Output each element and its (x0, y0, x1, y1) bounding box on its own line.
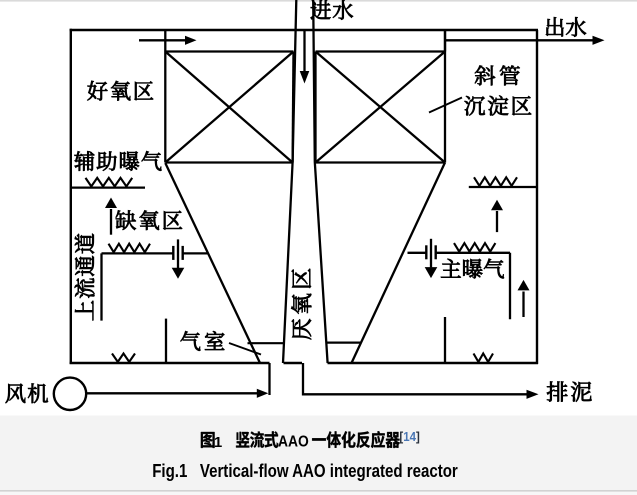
svg-text:1: 1 (214, 434, 222, 451)
svg-text:[14]: [14] (399, 429, 419, 444)
svg-text:AAO: AAO (278, 434, 309, 451)
svg-text:Fig.1 Vertical-flow AAO inte: Fig.1 Vertical-flow AAO integrated react… (152, 460, 458, 481)
